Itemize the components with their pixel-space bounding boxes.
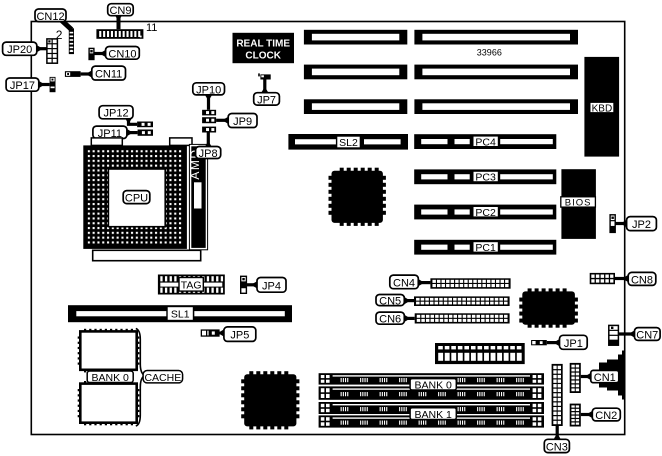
svg-text:CN5: CN5 xyxy=(379,296,401,308)
svg-text:BANK 0: BANK 0 xyxy=(415,380,453,392)
svg-text:JP2: JP2 xyxy=(632,219,651,231)
svg-text:CN1: CN1 xyxy=(594,372,616,384)
svg-text:PC1: PC1 xyxy=(475,242,496,254)
svg-text:BANK 1: BANK 1 xyxy=(415,409,453,421)
svg-text:JP20: JP20 xyxy=(7,44,32,56)
svg-text:CN11: CN11 xyxy=(95,69,122,81)
svg-text:KBD: KBD xyxy=(592,103,613,114)
svg-text:CACHE: CACHE xyxy=(144,372,181,384)
svg-text:CN6: CN6 xyxy=(379,314,401,326)
svg-text:JP10: JP10 xyxy=(196,84,221,96)
svg-text:CN9: CN9 xyxy=(109,5,131,17)
svg-text:JP8: JP8 xyxy=(199,148,218,160)
svg-text:JP1: JP1 xyxy=(564,338,583,350)
svg-text:33966: 33966 xyxy=(477,48,502,58)
svg-text:CN10: CN10 xyxy=(108,48,136,60)
svg-text:CLOCK: CLOCK xyxy=(245,51,281,62)
svg-text:JP12: JP12 xyxy=(104,108,129,120)
svg-text:PC4: PC4 xyxy=(475,136,496,148)
svg-text:BIOS: BIOS xyxy=(565,198,592,209)
svg-text:JP5: JP5 xyxy=(230,330,249,342)
svg-text:SL2: SL2 xyxy=(339,137,358,149)
svg-text:CPU: CPU xyxy=(125,193,148,205)
svg-text:BANK 0: BANK 0 xyxy=(92,372,130,384)
svg-text:PC3: PC3 xyxy=(475,172,496,184)
svg-text:TAG: TAG xyxy=(181,279,202,291)
svg-text:CN8: CN8 xyxy=(631,274,653,286)
svg-text:CN12: CN12 xyxy=(36,11,64,23)
svg-text:PC2: PC2 xyxy=(475,207,496,219)
svg-text:JP7: JP7 xyxy=(257,94,276,106)
svg-text:CN2: CN2 xyxy=(595,410,617,422)
svg-text:CN3: CN3 xyxy=(546,441,568,453)
svg-text:JP9: JP9 xyxy=(233,116,252,128)
svg-text:REAL TIME: REAL TIME xyxy=(236,39,290,50)
svg-text:JP4: JP4 xyxy=(262,280,281,292)
svg-text:11: 11 xyxy=(146,22,157,34)
svg-text:CN4: CN4 xyxy=(393,277,415,289)
svg-text:SL1: SL1 xyxy=(171,309,190,321)
svg-text:CN7: CN7 xyxy=(636,329,658,341)
svg-text:JP17: JP17 xyxy=(10,80,35,92)
